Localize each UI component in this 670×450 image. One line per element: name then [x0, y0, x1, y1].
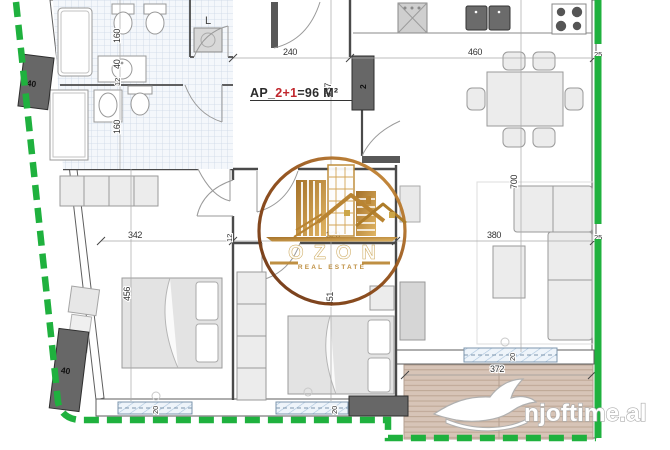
- living-room: [400, 182, 593, 344]
- radiator-icon: [501, 338, 509, 346]
- bidet-icon: [146, 12, 164, 34]
- dim-bedroom1-width: 342: [128, 230, 142, 240]
- column-label: 40: [60, 365, 71, 376]
- logo-rule-right: [362, 262, 390, 265]
- column-label: 2: [358, 84, 368, 89]
- kitchen-door-leaf: [362, 156, 400, 163]
- sofa-right-section: [548, 232, 592, 340]
- dim-living-width: 380: [487, 230, 501, 240]
- ap-type: 2+1: [275, 86, 297, 100]
- ap-area: =96 M²: [297, 86, 338, 100]
- dim-hall-width: 240: [283, 47, 297, 57]
- realtor-logo-watermark: OZON REAL ESTATE: [259, 158, 406, 304]
- chair-corner: [68, 286, 99, 316]
- chair: [533, 128, 555, 147]
- kitchen-door-arc: [362, 121, 400, 156]
- logo-rule-left: [270, 262, 298, 265]
- shower-tray: [50, 90, 88, 160]
- dining-set: [467, 52, 583, 147]
- dim-bedroom1-wall: 12: [225, 234, 234, 242]
- stove-icon: [552, 4, 586, 34]
- dim-bath-gap: 12: [113, 78, 122, 86]
- dining-table: [487, 72, 563, 126]
- column-bottom-center: [349, 396, 408, 416]
- dim-living-height: 700: [509, 175, 519, 189]
- chair: [533, 52, 555, 70]
- floorplan-image: L: [0, 0, 670, 450]
- dim-bath-top: 160: [112, 29, 122, 43]
- sink2-basin-icon: [99, 93, 117, 117]
- chair: [503, 128, 525, 147]
- dim-bath-bottom: 160: [112, 120, 122, 134]
- dim-window-bedroom1: 20: [151, 406, 160, 414]
- logo-bar: [266, 237, 398, 242]
- ap-prefix: AP_: [250, 86, 276, 100]
- toilet2-icon: [131, 93, 149, 115]
- chair: [503, 52, 525, 70]
- kitchen: [353, 3, 592, 34]
- entry-door-leaf: [271, 2, 278, 48]
- logo-tagline-text: REAL ESTATE: [298, 264, 366, 271]
- dim-bath-wall: 40: [112, 59, 122, 69]
- pillow: [196, 282, 218, 320]
- dim-bedroom1-height: 456: [122, 287, 132, 301]
- logo-buildings-icon: [294, 165, 406, 237]
- floor-plan-svg: L: [0, 0, 670, 450]
- dim-window-living: 20: [508, 353, 517, 361]
- dim-window-bedroom2: 20: [330, 406, 339, 414]
- laundry-label: L: [205, 15, 211, 27]
- column-label: 40: [26, 78, 37, 89]
- site-watermark-text: njoftime.al: [524, 400, 647, 427]
- logo-brand-text: OZON: [288, 242, 386, 264]
- bathroom-door: [198, 169, 230, 201]
- coffee-table: [493, 246, 525, 298]
- apartment-label: AP_2+1=96 M²: [250, 86, 352, 101]
- chair: [467, 88, 485, 110]
- entry-door-arc: [274, 2, 320, 48]
- bathroom-zone: L: [50, 0, 233, 169]
- dim-terrace-width: 372: [490, 364, 504, 374]
- bathtub: [58, 8, 92, 76]
- tv-cabinet: [400, 282, 425, 340]
- apartment-title: AP_2+1=96 M²: [250, 86, 338, 100]
- pillow: [196, 324, 218, 362]
- dim-kitchen-width: 460: [468, 47, 482, 57]
- pillow: [368, 358, 390, 392]
- pillow: [368, 320, 390, 354]
- column-entry: [352, 56, 374, 110]
- basin-right-icon: [489, 6, 510, 30]
- bedroom1-door: [197, 180, 233, 216]
- chair: [565, 88, 583, 110]
- basin-left-icon: [466, 6, 487, 30]
